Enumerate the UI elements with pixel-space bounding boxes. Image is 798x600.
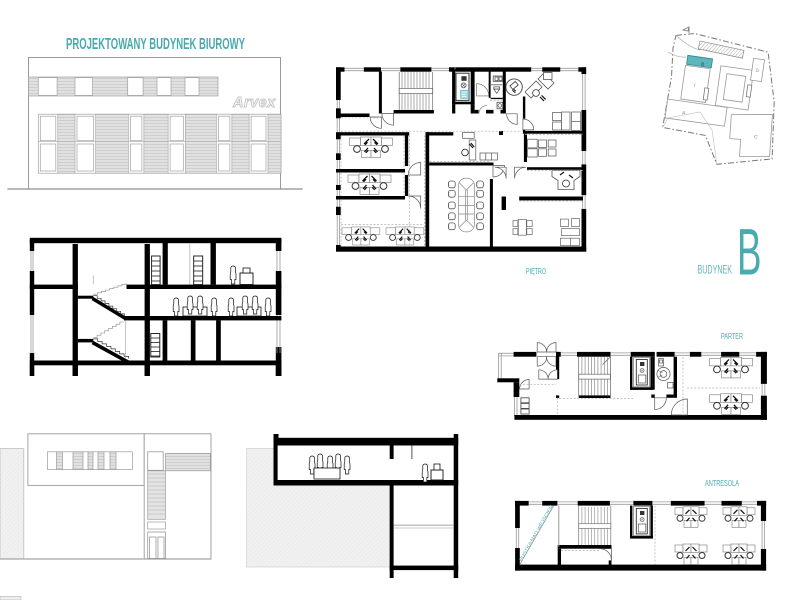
svg-text:Arvex: Arvex	[232, 95, 276, 111]
svg-text:ANTRESOLA: ANTRESOLA	[705, 478, 739, 488]
svg-text:PARTER: PARTER	[721, 331, 743, 341]
svg-text:BUDYNEK: BUDYNEK	[698, 263, 733, 277]
svg-text:PROJEKTOWANY BUDYNEK BIUROWY: PROJEKTOWANY BUDYNEK BIUROWY	[66, 36, 245, 53]
svg-text:PIĘTRO: PIĘTRO	[526, 266, 546, 276]
svg-text:B: B	[737, 215, 762, 289]
